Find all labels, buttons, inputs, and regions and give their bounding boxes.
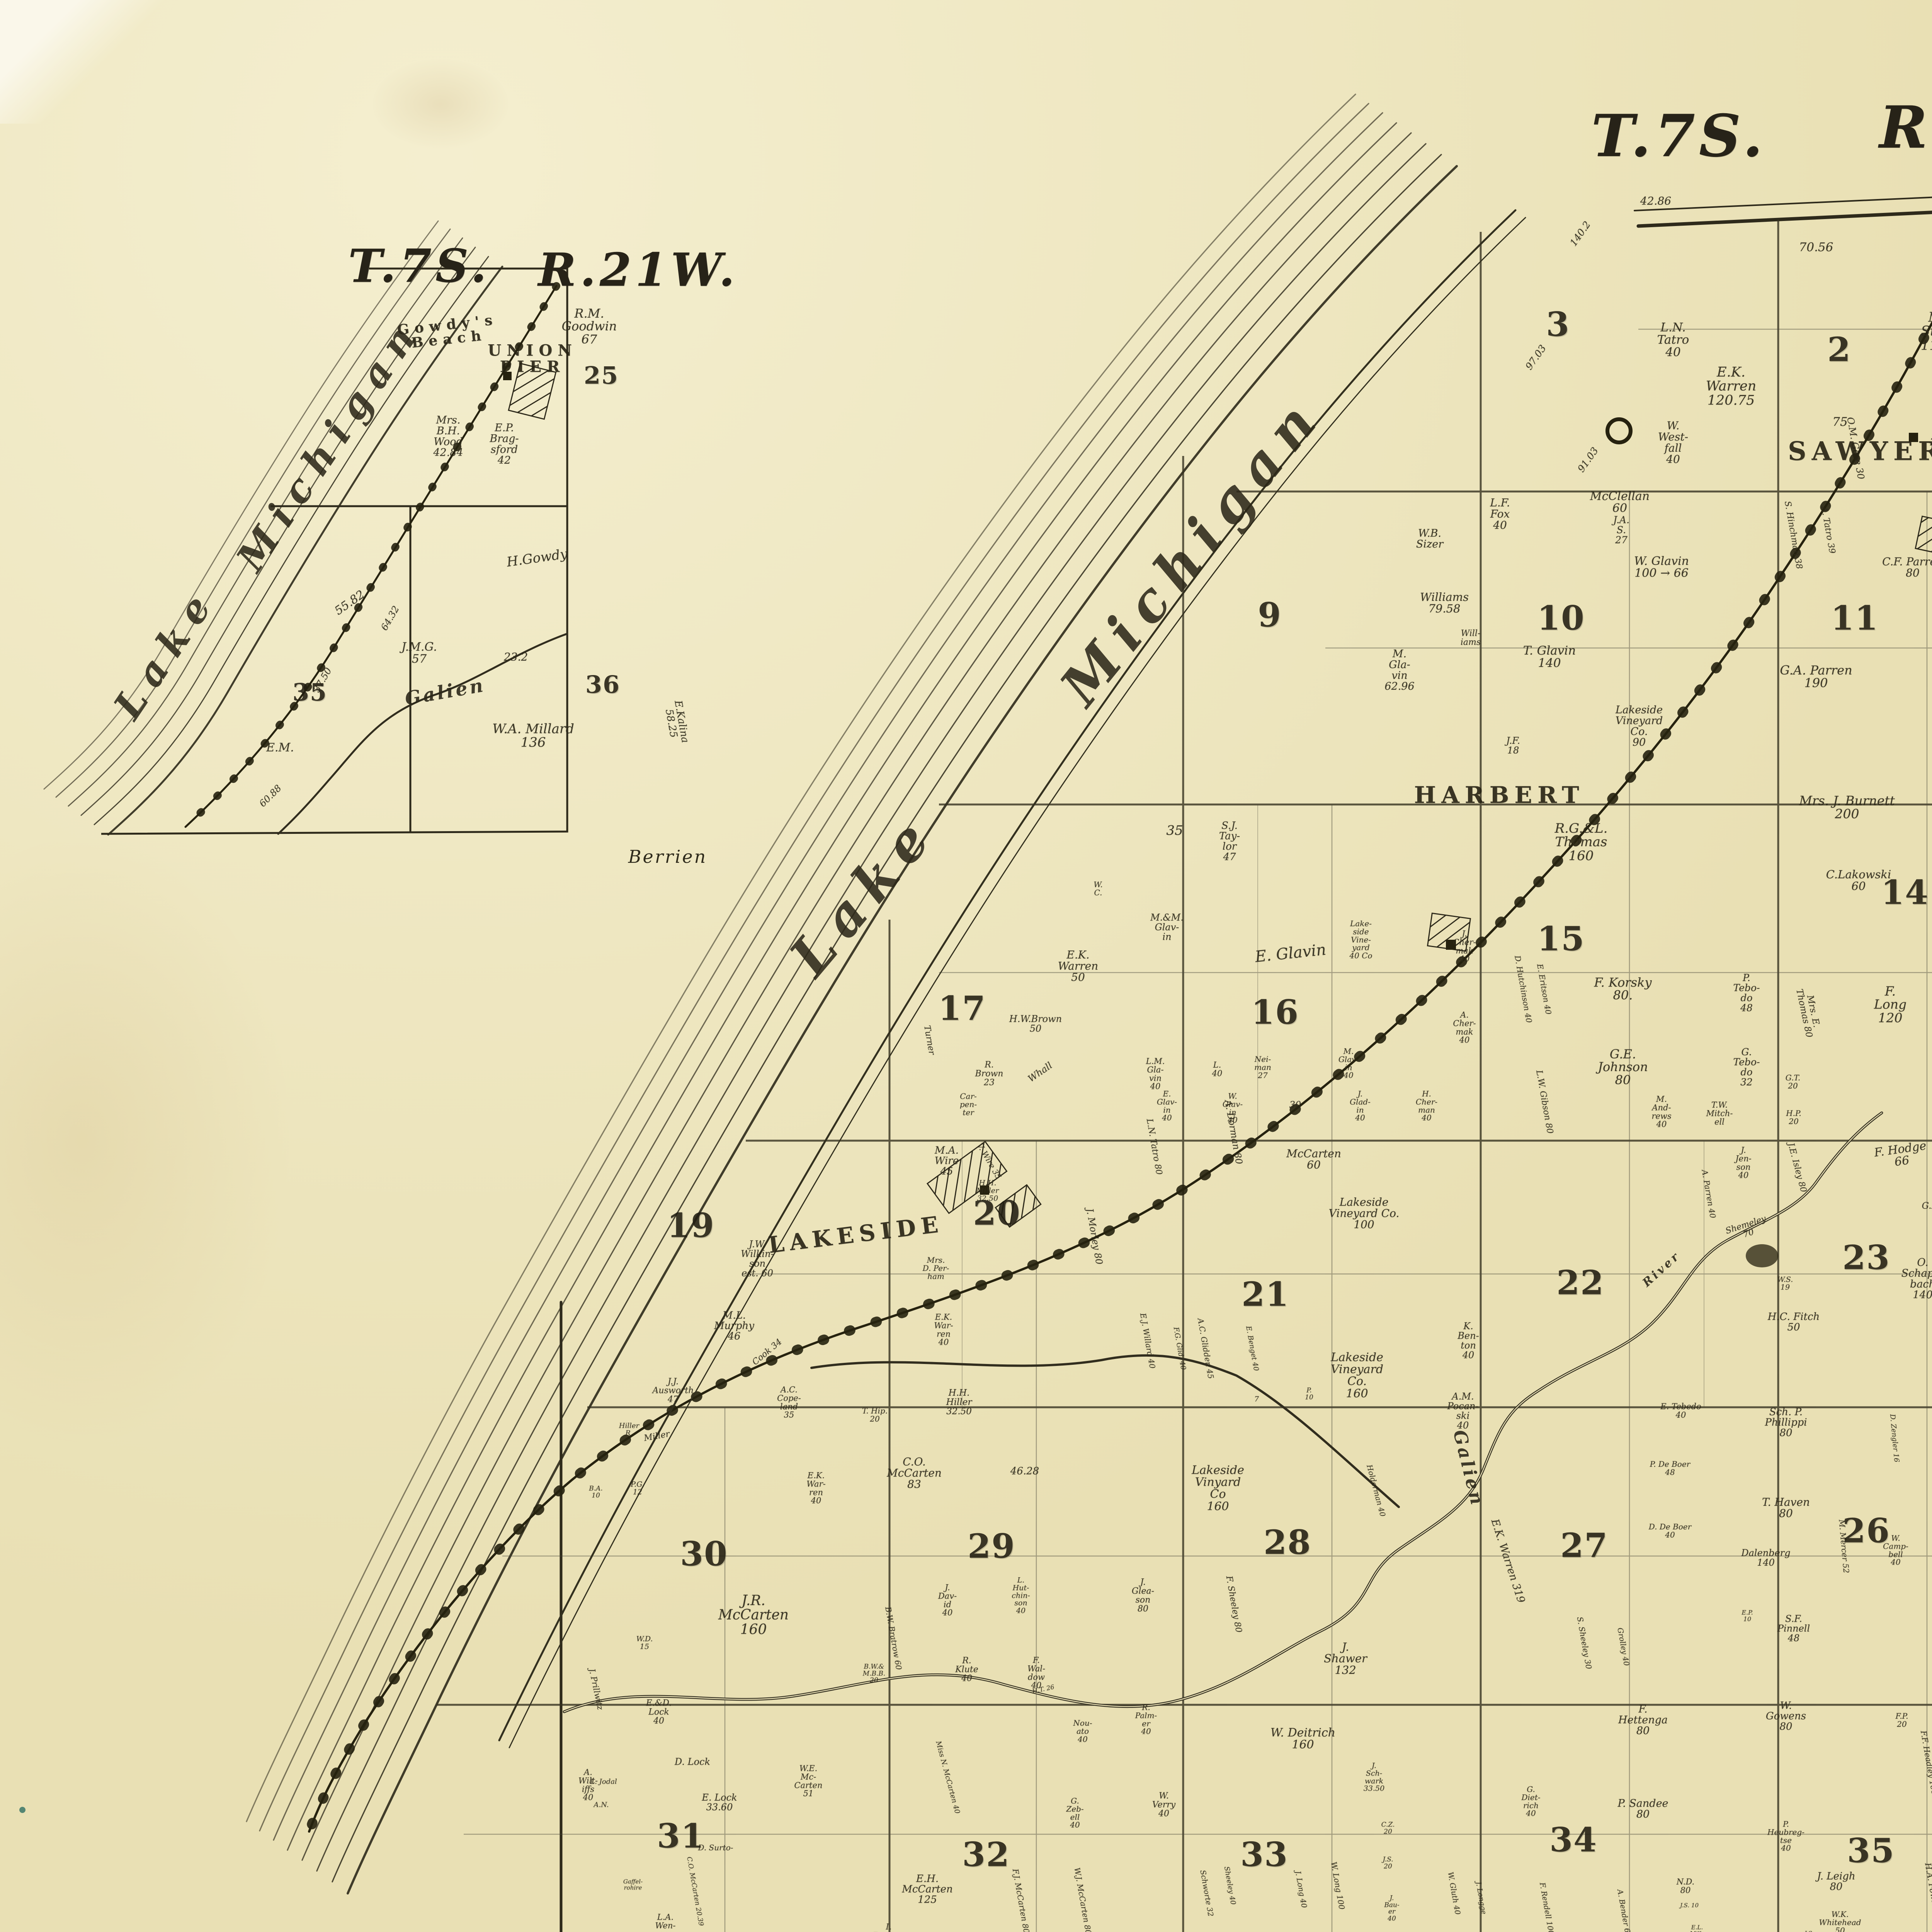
parcel-label: W. Gowens 80 xyxy=(1766,1701,1806,1732)
parcel-label: H.C. Fitch 50 xyxy=(1768,1312,1820,1333)
parcel-label: J.F. 18 xyxy=(1506,736,1520,755)
parcel-label: H.A. Fowler 80 xyxy=(1923,1862,1932,1924)
parcel-label: P. 10 xyxy=(1305,1387,1313,1401)
section_number-label: 14 xyxy=(1881,875,1929,910)
parcel-label: 7 xyxy=(1254,1396,1259,1403)
parcel-label: K. Ben- ton 40 xyxy=(1458,1321,1479,1360)
parcel-label: 70.56 xyxy=(1799,241,1833,253)
parcel-label: A. Wilt- iffs 40 xyxy=(578,1768,598,1802)
parcel-label: F. Hettenga 80 xyxy=(1618,1704,1668,1736)
section_number-label: 21 xyxy=(1242,1277,1289,1311)
parcel-label: A.M. Pocan- ski 40 xyxy=(1447,1392,1479,1430)
parcel-label: Lakeside Vineyard Co. 100 xyxy=(1329,1196,1400,1230)
parcel-label: J.S. 15 xyxy=(1804,1930,1814,1932)
parcel-label: C.Lakowski 60 xyxy=(1826,869,1891,892)
parcel-label: Lakeside Vineyard Co. 160 xyxy=(1331,1352,1383,1400)
parcel-label: Grolley 40 xyxy=(1616,1627,1630,1667)
parcel-label: Mrs. B.H. Wood 42.84 xyxy=(433,415,463,458)
parcel-label: B.A. 10 xyxy=(589,1485,603,1499)
parcel-label: W. Gluth 40 xyxy=(1446,1871,1461,1915)
parcel-label: H.T. 26 xyxy=(1032,1684,1055,1695)
parcel-label: W. Glav- in 40 xyxy=(1223,1092,1243,1124)
parcel-label: F.F. Headley 100 xyxy=(1919,1730,1932,1796)
parcel-label: J. Dav- id 40 xyxy=(938,1583,957,1617)
parcel-label: Sheeley 40 xyxy=(1223,1866,1236,1905)
parcel-label: G. Diet- rich 40 xyxy=(1521,1785,1540,1817)
parcel-label: M. Glav- in 40 xyxy=(1338,1047,1359,1079)
parcel-label: F. Korsky 80. xyxy=(1594,976,1651,1002)
parcel-label: H. Cher- man 40 xyxy=(1416,1090,1437,1122)
parcel-label: M.A. Wire 45 xyxy=(935,1145,959,1177)
parcel-label: E.K. Warren 319 xyxy=(1489,1518,1527,1604)
ink-speck xyxy=(19,1807,26,1813)
parcel-label: L. Jodal xyxy=(590,1779,617,1786)
parcel-label: W. Deitrich 160 xyxy=(1270,1727,1335,1751)
water-label: Lake xyxy=(107,579,224,726)
parcel-label: M. Gla- vin 62.96 xyxy=(1384,649,1414,692)
parcel-label: Cook 34 xyxy=(751,1338,784,1367)
parcel-label: H.Gowdy xyxy=(506,547,568,569)
parcel-label: R. Klute 40 xyxy=(955,1657,978,1684)
parcel-label: F.G. Glid. 40 xyxy=(1172,1327,1187,1371)
water-label: Lake xyxy=(781,803,947,986)
section_number-label: 27 xyxy=(1560,1528,1608,1563)
section_number-label: 30 xyxy=(680,1537,728,1571)
parcel-label: F. Wal- dow 40 xyxy=(1027,1656,1045,1690)
parcel-label: J.S. 20 xyxy=(1383,1856,1393,1870)
parcel-label: Holderman 40 xyxy=(1365,1464,1386,1518)
parcel-label: Mrs. E. Thomas 80 xyxy=(1794,986,1822,1038)
parcel-label: W. Verry 40 xyxy=(1152,1792,1175,1819)
parcel-label: P. De Boer 48 xyxy=(1650,1460,1690,1476)
parcel-label: Sch. P. Phillippi 80 xyxy=(1765,1407,1807,1438)
parcel-label: Gaffel- rohire xyxy=(623,1879,643,1891)
parcel-label: J. Sch- wark 33.50 xyxy=(1364,1762,1384,1793)
parcel-label: 60.88 xyxy=(258,783,283,809)
parcel-label: L.N. Tatro 80 xyxy=(1145,1118,1163,1176)
parcel-label: N.D. 80 xyxy=(1677,1878,1694,1895)
parcel-label: F. Rendell 100 xyxy=(1538,1882,1554,1932)
parcel-label: P. Tebo- do 48 xyxy=(1733,973,1760,1013)
section_number-label: 3 xyxy=(1546,307,1570,342)
parcel-label: E.K. War- ren 40 xyxy=(934,1313,953,1347)
atlas-scan: { "page":{"paper":"#e9e0b4","ink":"#2e2a… xyxy=(0,0,1932,1932)
section_number-label: 11 xyxy=(1831,601,1879,635)
parcel-label: J. Shawer 132 xyxy=(1324,1641,1367,1676)
parcel-label: G. Zeb- ell 40 xyxy=(1066,1797,1083,1829)
parcel-label: S. Sheeley 30 xyxy=(1576,1616,1593,1670)
parcel-label: 37.50 xyxy=(312,666,333,694)
parcel-label: L. Hut- chin- son 40 xyxy=(1012,1577,1030,1615)
parcel-label: A. Tatro 39 xyxy=(1819,506,1836,554)
parcel-label: M. Mercer 52 xyxy=(1838,1519,1850,1574)
parcel-label: P.G. 12 xyxy=(631,1481,645,1496)
parcel-label: M.A. Statler 111.36 xyxy=(1921,310,1932,352)
parcel-label: Miller xyxy=(643,1430,670,1443)
parcel-label: E. Glav- in 40 xyxy=(1157,1090,1177,1122)
parcel-label: E. Eritson 40 xyxy=(1536,963,1553,1015)
parcel-label: Nou- ato 40 xyxy=(1073,1719,1092,1743)
parcel-label: J.J. Ausworth 47 xyxy=(653,1378,694,1405)
parcel-label: I. Rynear- son 60 xyxy=(873,1923,905,1932)
section_number-label: 34 xyxy=(1549,1823,1597,1857)
parcel-label: D. Lock xyxy=(675,1757,710,1767)
parcel-label: A. Dorman 80 xyxy=(1223,1099,1244,1165)
section_number-label: 16 xyxy=(1251,995,1299,1029)
parcel-label: E. Benget 40 xyxy=(1245,1325,1260,1372)
section_number-label: 33 xyxy=(1240,1837,1288,1872)
section_number-label: 36 xyxy=(585,672,620,697)
parcel-label: W.B. Sizer xyxy=(1416,528,1443,550)
parcel-label: E.J. Willard 40 xyxy=(1139,1312,1156,1369)
parcel-label: R. Brown 23 xyxy=(975,1061,1003,1088)
parcel-label: 91.03 xyxy=(1576,446,1600,474)
parcel-label: P. Sandee 80 xyxy=(1617,1798,1668,1820)
section_number-label: 22 xyxy=(1556,1265,1604,1300)
parcel-label: J. Cher- mak 40 xyxy=(1453,930,1476,963)
parcel-label: A. Parren 40 xyxy=(1701,1169,1717,1219)
section_number-label: 26 xyxy=(1842,1514,1890,1548)
parcel-label: D. Hutchinson 40 xyxy=(1513,955,1533,1024)
parcel-label: T. Hip. 20 xyxy=(862,1407,888,1423)
parcel-label: J. Longge xyxy=(1474,1881,1487,1915)
river-label: Galien xyxy=(1450,1428,1486,1509)
parcel-label: 35 xyxy=(1166,824,1183,837)
parcel-label: F.P. 20 xyxy=(1896,1712,1908,1728)
parcel-label: L.F. Fox 40 xyxy=(1490,497,1510,531)
parcel-label: E. Tebedo 40 xyxy=(1660,1403,1701,1420)
parcel-label: McCarten 60 xyxy=(1286,1148,1341,1170)
parcel-label: C.O. McCarten 83 xyxy=(887,1456,942,1490)
township-title-main: T.7S. xyxy=(1591,102,1767,170)
parcel-label: A.N. xyxy=(594,1802,609,1809)
parcel-label: McClellan 60 xyxy=(1590,490,1650,514)
township-title-inset: T.7S. xyxy=(348,239,490,293)
parcel-label: E.M. xyxy=(266,742,294,753)
parcel-label: J. Long 40 xyxy=(1294,1871,1308,1909)
town-label: HARBERT xyxy=(1414,783,1584,807)
section_number-label: 2 xyxy=(1827,332,1851,367)
parcel-label: T. Haven 80 xyxy=(1762,1497,1810,1519)
section_number-label: 28 xyxy=(1264,1525,1311,1560)
section_number-label: 15 xyxy=(1537,922,1585,956)
parcel-label: Schworte 32 xyxy=(1199,1869,1214,1917)
parcel-label: D. Surto- xyxy=(698,1844,733,1852)
parcel-label: M.L. Murphy 46 xyxy=(714,1310,754,1342)
parcel-label: E.Kalina 58.25 xyxy=(662,700,690,746)
town-label: LAKESIDE xyxy=(767,1212,945,1257)
parcel-label: T. Glavin 140 xyxy=(1523,645,1576,669)
section_number-label: 35 xyxy=(293,680,327,705)
section_number-label: 32 xyxy=(962,1837,1010,1872)
parcel-label: D. De Boer 40 xyxy=(1649,1523,1691,1539)
parcel-label: Mrs. D. Per- ham xyxy=(923,1256,949,1280)
parcel-label: H.P. 20 xyxy=(1786,1109,1801,1126)
parcel-label: B.W.& M.B.B. 20 xyxy=(863,1663,886,1684)
section_number-label: 10 xyxy=(1537,601,1585,635)
parcel-label: S.J. Tay- lor 47 xyxy=(1219,821,1240,862)
river-label: Galien xyxy=(403,676,486,709)
parcel-label: J. Bau- er 40 xyxy=(1384,1895,1399,1923)
parcel-label: S. Hinchman 38 xyxy=(1782,500,1803,570)
parcel-label: A.C. Cope- land 35 xyxy=(777,1386,801,1419)
parcel-label: Lake- side Vine- yard 40 Co xyxy=(1349,920,1372,960)
section_number-label: 9 xyxy=(1258,598,1282,632)
parcel-label: A.C. Glidden 45 xyxy=(1196,1318,1215,1379)
parcel-label: J.A. S. 27 xyxy=(1613,515,1629,545)
parcel-label: E.K. War- ren 40 xyxy=(806,1471,825,1505)
parcel-label: W. Camp- bell 40 xyxy=(1883,1534,1908,1566)
parcel-label: F. Hodge 66 xyxy=(1874,1140,1929,1171)
parcel-label: Will- iams xyxy=(1461,629,1481,647)
parcel-label: J. Jen- son 40 xyxy=(1735,1146,1751,1180)
parcel-label: Lakeside Vinyard Co 160 xyxy=(1192,1464,1244,1513)
parcel-label: L.A. Wen- ans 58 xyxy=(655,1913,676,1932)
parcel-label: B.W. Bratrow 60 xyxy=(884,1606,903,1671)
parcel-label: J. Prillwitz xyxy=(587,1668,604,1711)
parcel-label: Whall xyxy=(1026,1061,1054,1084)
parcel-label: J. Leigh 80 xyxy=(1817,1871,1855,1892)
parcel-label: L.M. Gla- vin 40 xyxy=(1146,1057,1165,1091)
parcel-label: E.&D. Lock 40 xyxy=(646,1699,672,1726)
parcel-label: R.M. Goodwin 67 xyxy=(562,307,617,346)
parcel-label: H. Tefft 27.40 xyxy=(1930,416,1932,447)
section_number-label: 19 xyxy=(667,1208,715,1243)
parcel-label: Shemeley 70 xyxy=(1725,1214,1770,1244)
parcel-label: M. And- rews 40 xyxy=(1651,1095,1671,1129)
parcel-label: Turner xyxy=(922,1025,936,1056)
parcel-label: C.F. Parren 80 xyxy=(1882,556,1932,578)
parcel-label: F.J. McCarten 80 xyxy=(1011,1868,1031,1932)
parcel-label: J. Morley 80 xyxy=(1085,1207,1104,1265)
parcel-label: E.P. Brag- sford 42 xyxy=(490,423,519,466)
parcel-label: H.W.Brown 50 xyxy=(1009,1014,1062,1034)
parcel-label: A. Cher- mak 40 xyxy=(1453,1011,1476,1044)
parcel-label: H.H. Hiller 32.50 xyxy=(946,1389,972,1417)
town-label: SAWYER xyxy=(1788,438,1932,465)
county-label: Berrien xyxy=(628,848,707,866)
parcel-label: C.Z. 20 xyxy=(1381,1821,1395,1835)
parcel-label: W.E. Mc- Carten 51 xyxy=(794,1764,822,1798)
parcel-label: Dalenberg 140 xyxy=(1741,1548,1790,1568)
range-title-main: R.20W. xyxy=(1879,94,1932,162)
town-label: Gowdy's Beach xyxy=(396,313,500,352)
parcel-label: F. Long 120 xyxy=(1874,985,1906,1025)
parcel-label: W. Glavin 100 → 66 xyxy=(1634,555,1689,579)
parcel-label: E.L. Mills est 30 xyxy=(1690,1925,1704,1932)
parcel-label: J. Glad- in 40 xyxy=(1350,1090,1371,1122)
section_number-label: 31 xyxy=(657,1819,705,1853)
town-label: UNION PIER xyxy=(488,342,577,374)
parcel-label: Nei- man 27 xyxy=(1254,1055,1271,1079)
parcel-label: 46.28 xyxy=(1010,1466,1039,1476)
parcel-label: E.K. Warren 120.75 xyxy=(1706,365,1757,407)
parcel-label: H.H. Miller 32.50 xyxy=(976,1179,999,1202)
parcel-label: M.&M. Glav- in xyxy=(1150,913,1184,942)
parcel-label: W.S. 19 xyxy=(1777,1276,1793,1291)
parcel-label: W.J. McCarten 80 xyxy=(1073,1867,1093,1932)
parcel-label: R.G.&L. Thomas 160 xyxy=(1555,822,1608,863)
section_number-label: 20 xyxy=(973,1196,1021,1230)
river-label: River xyxy=(1640,1250,1682,1289)
parcel-label: D. Zengler 16 xyxy=(1888,1414,1900,1463)
parcel-label: 75 xyxy=(1832,416,1847,428)
parcel-label: J.E. Isley 80 xyxy=(1786,1142,1808,1193)
parcel-label: L. 40 xyxy=(1212,1061,1223,1078)
parcel-label: Hiller R. xyxy=(619,1422,639,1437)
parcel-label: 30 xyxy=(1289,1100,1301,1110)
parcel-label: Miss N. McCarten 40 xyxy=(934,1740,961,1815)
parcel-label: G.T. 20 xyxy=(1786,1074,1800,1090)
parcel-label: W. C. xyxy=(1094,881,1102,897)
parcel-label: R. Palm- er 40 xyxy=(1135,1703,1157,1735)
water-label: Michigan xyxy=(1051,386,1333,715)
map-labels: R.M. Goodwin 67Mrs. B.H. Wood 42.84E.P. … xyxy=(0,0,1932,1932)
parcel-label: S.F. Pinnell 48 xyxy=(1777,1614,1810,1643)
parcel-label: G. Tebo- do 32 xyxy=(1733,1047,1760,1087)
parcel-label: W. West- fall 40 xyxy=(1658,420,1688,465)
parcel-label: C.O. McCarten 20.39 xyxy=(685,1856,704,1927)
parcel-label: E.P. 10 xyxy=(1742,1609,1753,1622)
parcel-label: E. Lock 33.60 xyxy=(702,1793,737,1812)
parcel-label: V. Wire 35 xyxy=(976,1142,1003,1180)
parcel-label: J. Glea- son 80 xyxy=(1132,1578,1154,1614)
parcel-label: A. Bender 60 xyxy=(1616,1889,1631,1932)
parcel-label: O. Schapp- bach 140 xyxy=(1901,1257,1932,1301)
parcel-label: W.D. 15 xyxy=(636,1635,653,1651)
parcel-label: W.A. Millard 136 xyxy=(492,723,574,750)
parcel-label: E.K. Warren 50 xyxy=(1058,949,1098,983)
range-title-inset: R.21W. xyxy=(538,243,739,297)
parcel-label: J.S. 10 xyxy=(1680,1903,1699,1909)
parcel-label: Williams 79.58 xyxy=(1420,591,1469,614)
parcel-label: E. Glavin xyxy=(1254,942,1327,966)
parcel-label: P. Heubreg- tse 40 xyxy=(1767,1820,1804,1852)
parcel-label: W.K. Whitehead 50 xyxy=(1819,1910,1861,1932)
parcel-label: W. Long 100 xyxy=(1330,1861,1346,1910)
parcel-label: 64.32 xyxy=(379,604,401,632)
parcel-label: L.N. Tatro 40 xyxy=(1657,321,1689,359)
parcel-label: 55.82 xyxy=(333,588,367,617)
parcel-label: G.A. Parren 190 xyxy=(1780,664,1852,690)
parcel-label: Lakeside Vineyard Co. 90 xyxy=(1616,705,1663,748)
parcel-label: 23.2 xyxy=(504,651,528,662)
section_number-label: 17 xyxy=(938,991,986,1026)
parcel-label: Mrs. J. Burnett 200 xyxy=(1799,794,1895,821)
section_number-label: 35 xyxy=(1847,1833,1895,1868)
parcel-label: G.P. Rikeyer 40 xyxy=(1922,1202,1932,1211)
parcel-label: F. Sheeley 80 xyxy=(1224,1575,1243,1633)
parcel-label: E.H. McCarten 125 xyxy=(902,1874,953,1905)
parcel-label: O.M. Gore 30 xyxy=(1845,416,1866,480)
parcel-label: T.W. Mitch- ell xyxy=(1706,1101,1733,1126)
parcel-label: 42.86 xyxy=(1640,195,1671,206)
parcel-label: 97.03 xyxy=(1524,343,1548,372)
section_number-label: 25 xyxy=(584,363,619,388)
parcel-label: 140.2 xyxy=(1568,219,1592,248)
parcel-label: L.W. Gibson 80 xyxy=(1534,1070,1554,1134)
parcel-label: J.M.G. 57 xyxy=(401,641,437,665)
parcel-label: J.W. Wilkin- son est. 60 xyxy=(741,1240,774,1278)
section_number-label: 29 xyxy=(968,1529,1015,1563)
parcel-label: J.R. McCarten 160 xyxy=(718,1594,789,1637)
section_number-label: 23 xyxy=(1842,1240,1890,1275)
water-label: Michigan xyxy=(230,310,429,578)
parcel-label: Car- pen- ter xyxy=(960,1092,977,1116)
parcel-label: G.E. Johnson 80 xyxy=(1598,1048,1648,1087)
